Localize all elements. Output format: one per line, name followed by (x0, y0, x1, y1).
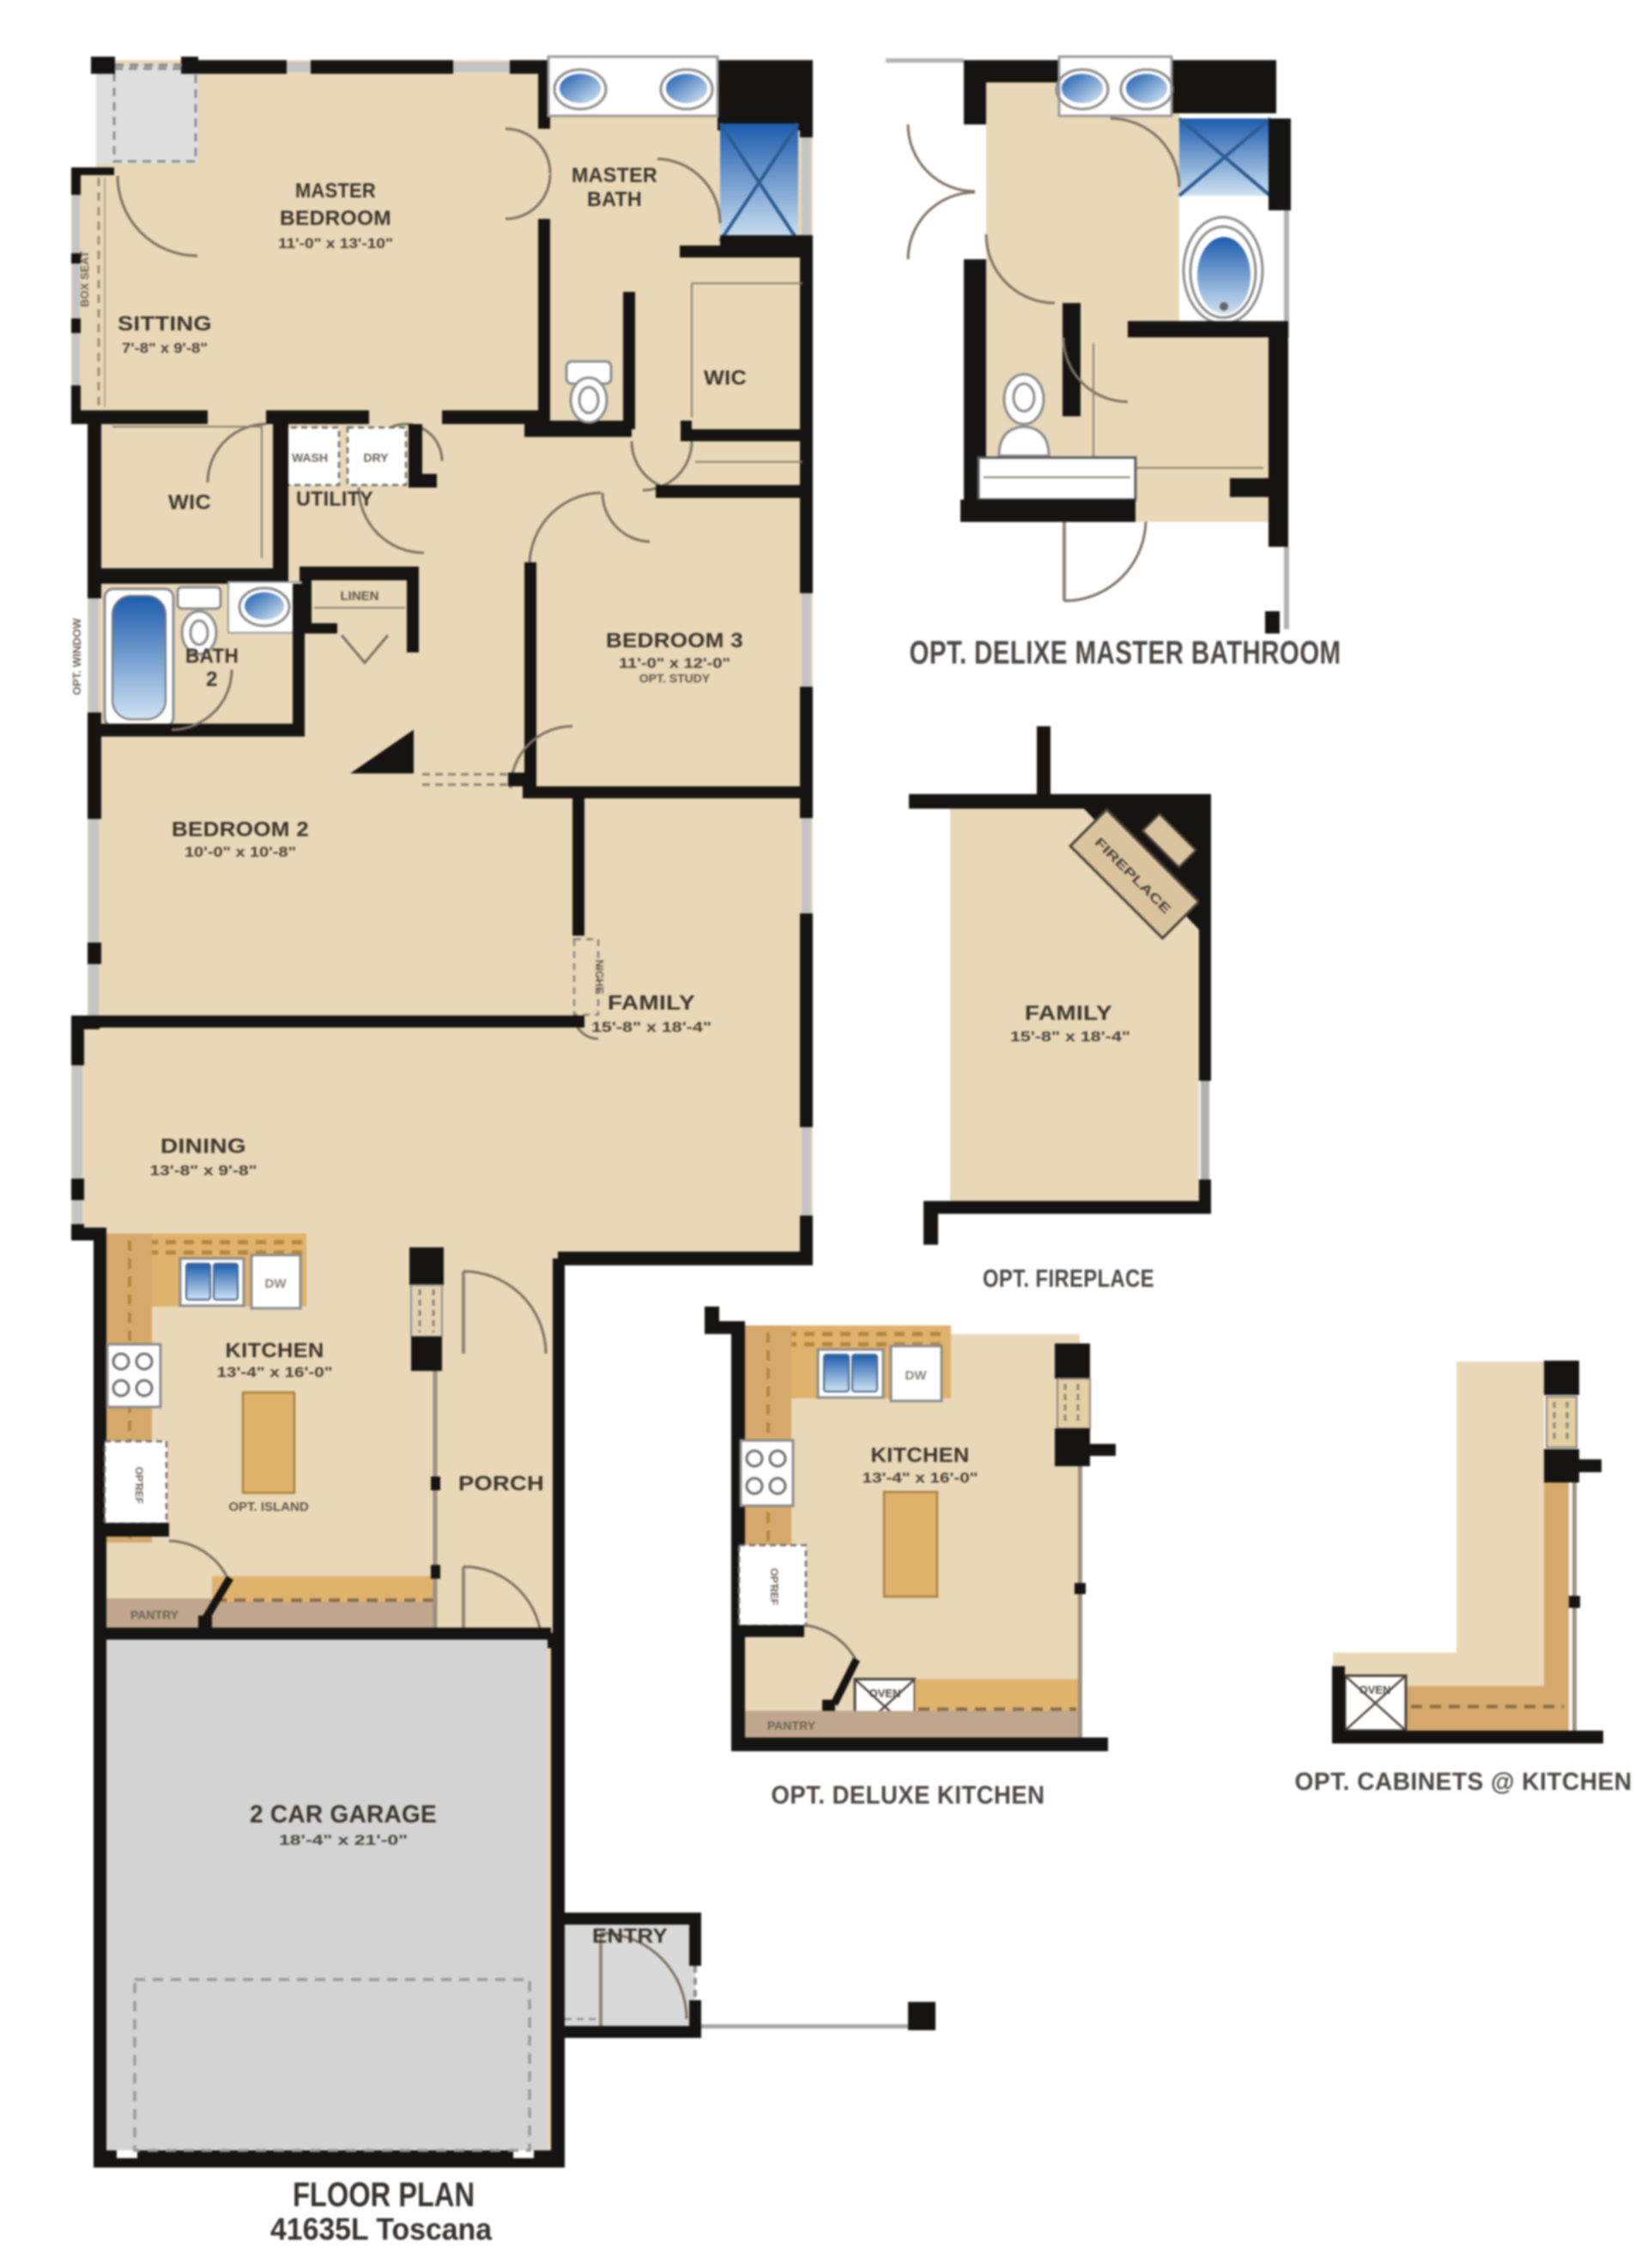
svg-text:11'-0" x 13'-10": 11'-0" x 13'-10" (278, 235, 393, 252)
svg-text:15'-8" x 18'-4": 15'-8" x 18'-4" (1010, 1028, 1130, 1045)
svg-text:41635L Toscana: 41635L Toscana (270, 2211, 493, 2247)
svg-text:OPT. ISLAND: OPT. ISLAND (228, 1500, 309, 1514)
svg-text:PANTRY: PANTRY (767, 1719, 816, 1732)
svg-text:2: 2 (206, 668, 218, 691)
svg-text:PANTRY: PANTRY (130, 1608, 179, 1622)
svg-text:13'-4" x 16'-0": 13'-4" x 16'-0" (863, 1470, 978, 1486)
svg-text:WIC: WIC (704, 367, 747, 390)
svg-text:UTILITY: UTILITY (296, 488, 373, 511)
svg-text:BATH: BATH (185, 645, 239, 668)
svg-text:DW: DW (905, 1368, 928, 1383)
svg-text:OVEN: OVEN (1359, 1683, 1391, 1696)
svg-text:FAMILY: FAMILY (608, 991, 695, 1015)
svg-text:10'-0" x 10'-8": 10'-0" x 10'-8" (185, 844, 296, 860)
svg-text:OPT. FIREPLACE: OPT. FIREPLACE (983, 1265, 1154, 1293)
svg-text:KITCHEN: KITCHEN (871, 1444, 970, 1467)
svg-text:DW: DW (265, 1277, 288, 1291)
svg-text:BEDROOM 3: BEDROOM 3 (606, 629, 743, 652)
svg-text:OPT. WINDOW: OPT. WINDOW (70, 617, 83, 694)
svg-text:15'-8" x 18'-4": 15'-8" x 18'-4" (591, 1019, 711, 1035)
svg-text:BATH: BATH (587, 188, 642, 211)
svg-text:WASH: WASH (292, 451, 328, 464)
svg-text:DRY: DRY (363, 451, 389, 464)
svg-text:2 CAR GARAGE: 2 CAR GARAGE (250, 1801, 437, 1828)
svg-text:LINEN: LINEN (341, 589, 379, 603)
svg-text:ENTRY: ENTRY (592, 1925, 668, 1948)
svg-text:7'-8" x 9'-8": 7'-8" x 9'-8" (122, 340, 208, 356)
svg-text:PORCH: PORCH (458, 1472, 544, 1495)
svg-text:WIC: WIC (168, 491, 211, 514)
svg-text:OPT. DELUXE KITCHEN: OPT. DELUXE KITCHEN (772, 1781, 1045, 1810)
svg-text:13'-4" x 16'-0": 13'-4" x 16'-0" (217, 1364, 333, 1380)
svg-text:DINING: DINING (160, 1135, 246, 1158)
svg-text:OVEN: OVEN (869, 1687, 901, 1700)
svg-text:BEDROOM 2: BEDROOM 2 (172, 818, 309, 841)
svg-text:BOX SEAT: BOX SEAT (78, 251, 91, 307)
svg-text:11'-0" x 12'-0": 11'-0" x 12'-0" (619, 655, 730, 671)
svg-text:KITCHEN: KITCHEN (226, 1339, 324, 1362)
svg-text:OPT. DELIXE MASTER BATHROOM: OPT. DELIXE MASTER BATHROOM (910, 635, 1341, 671)
svg-text:13'-8" x 9'-8": 13'-8" x 9'-8" (150, 1162, 257, 1179)
svg-text:REF: REF (133, 1483, 145, 1504)
svg-text:NICHE: NICHE (593, 960, 606, 995)
svg-text:MASTER: MASTER (572, 164, 657, 187)
svg-text:FLOOR PLAN: FLOOR PLAN (293, 2176, 475, 2214)
svg-text:REF: REF (768, 1585, 780, 1605)
svg-text:OPT. CABINETS @ KITCHEN: OPT. CABINETS @ KITCHEN (1295, 1768, 1632, 1796)
svg-text:18'-4" x 21'-0": 18'-4" x 21'-0" (279, 1832, 408, 1848)
svg-text:SITTING: SITTING (118, 312, 212, 336)
svg-text:MASTER: MASTER (295, 179, 376, 203)
svg-text:FAMILY: FAMILY (1025, 1002, 1112, 1025)
svg-text:OPT. STUDY: OPT. STUDY (639, 671, 711, 685)
svg-text:BEDROOM: BEDROOM (280, 207, 391, 230)
